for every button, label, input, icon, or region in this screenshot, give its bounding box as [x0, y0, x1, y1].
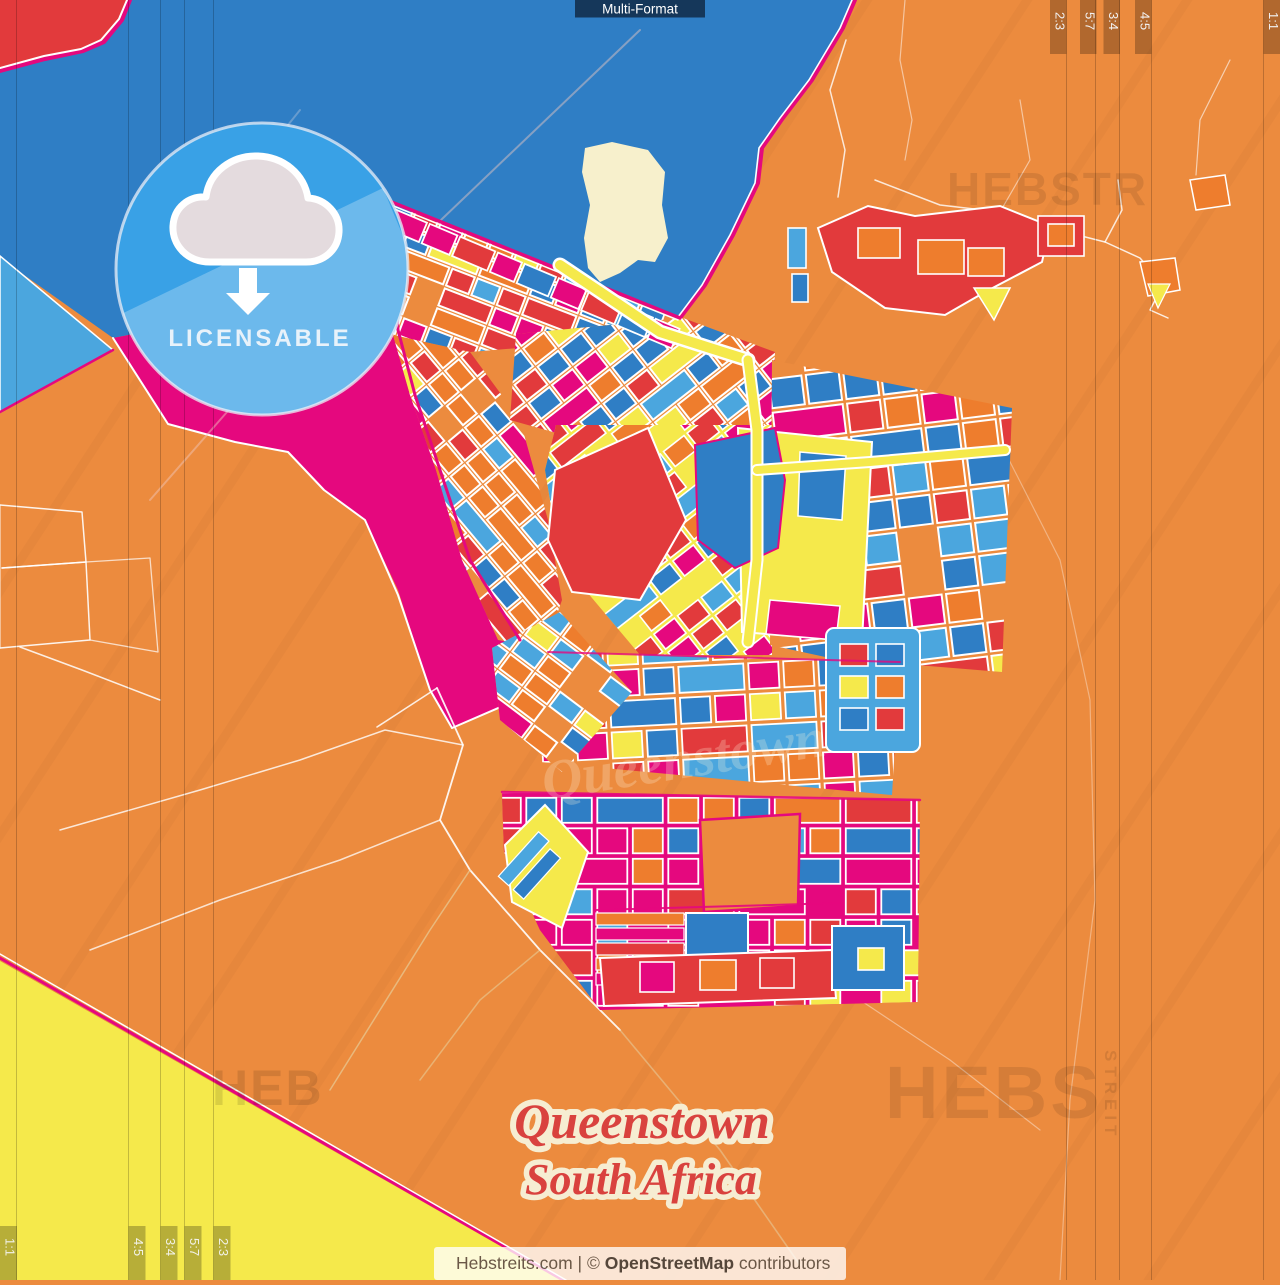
svg-text:LICENSABLE: LICENSABLE: [168, 325, 351, 352]
svg-text:5:7: 5:7: [1082, 12, 1097, 30]
svg-text:South Africa: South Africa: [525, 1155, 757, 1204]
svg-text:1:1: 1:1: [1266, 12, 1280, 30]
svg-text:HEBS: HEBS: [885, 1051, 1103, 1134]
svg-text:HEBSTR: HEBSTR: [947, 163, 1148, 215]
svg-text:4:5: 4:5: [131, 1238, 146, 1256]
svg-text:2:3: 2:3: [216, 1238, 231, 1256]
svg-text:HEB: HEB: [212, 1060, 324, 1116]
svg-text:Multi-Format: Multi-Format: [602, 2, 678, 17]
svg-text:5:7: 5:7: [187, 1238, 202, 1256]
svg-text:3:4: 3:4: [1106, 12, 1121, 30]
svg-text:2:3: 2:3: [1052, 12, 1067, 30]
svg-text:4:5: 4:5: [1137, 12, 1152, 30]
svg-text:3:4: 3:4: [163, 1238, 178, 1256]
svg-text:Queenstown: Queenstown: [514, 1093, 770, 1149]
svg-text:STREIT: STREIT: [1101, 1050, 1120, 1140]
svg-text:1:1: 1:1: [3, 1238, 18, 1256]
svg-text:Hebstreits.com | © OpenStreetM: Hebstreits.com | © OpenStreetMap contrib…: [456, 1253, 831, 1273]
